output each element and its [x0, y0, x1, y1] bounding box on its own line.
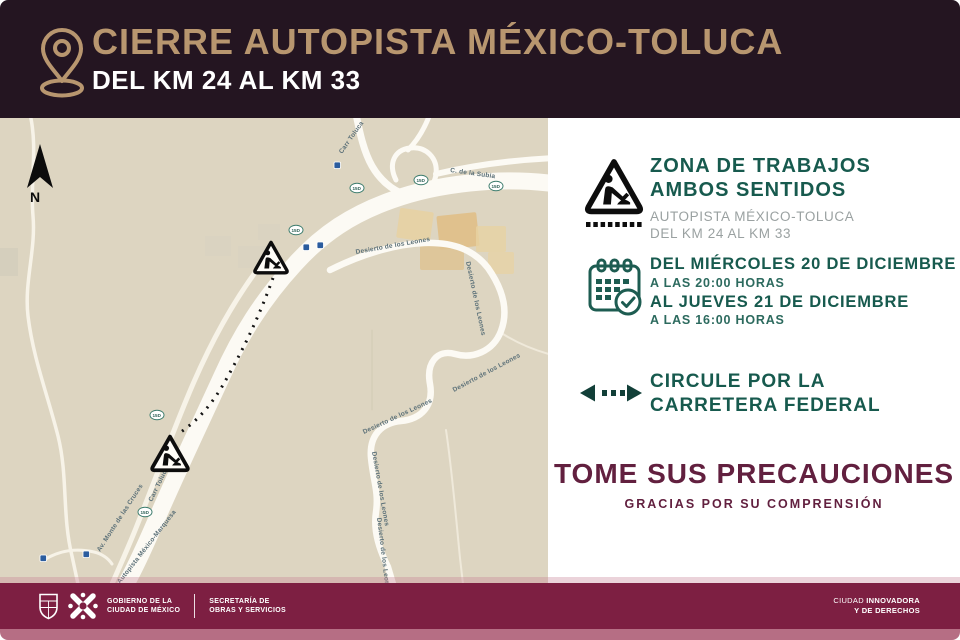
- detour-line1: CIRCULE POR LA: [650, 370, 881, 394]
- svg-text:15D: 15D: [153, 413, 162, 418]
- works-line2: AMBOS SENTIDOS: [650, 178, 871, 202]
- department-name: SECRETARÍA DE OBRAS Y SERVICIOS: [209, 597, 286, 616]
- calendar-check-icon: [586, 258, 644, 320]
- svg-text:15D: 15D: [141, 510, 150, 515]
- header: CIERRE AUTOPISTA MÉXICO-TOLUCA DEL KM 24…: [0, 0, 960, 118]
- schedule-end-date: AL JUEVES 21 DE DICIEMBRE: [650, 292, 956, 313]
- government-branding: GOBIERNO DE LA CIUDAD DE MÉXICO SECRETAR…: [38, 583, 286, 629]
- city-shield-logo-icon: [38, 593, 59, 620]
- svg-text:15D: 15D: [353, 186, 362, 191]
- cdmx-logo-icon: [67, 591, 99, 621]
- bottom-accent-strip: [0, 629, 960, 640]
- footer-divider: [194, 594, 195, 618]
- warning-section: TOME SUS PRECAUCIONES GRACIAS POR SU COM…: [548, 458, 960, 511]
- detour-line2: CARRETERA FEDERAL: [650, 394, 881, 418]
- government-name: GOBIERNO DE LA CIUDAD DE MÉXICO: [107, 597, 180, 616]
- road-map: N 15D 15D 15D 15D 15D 15D: [0, 118, 548, 583]
- svg-text:15D: 15D: [417, 178, 426, 183]
- info-panel: ZONA DE TRABAJOS AMBOS SENTIDOS AUTOPIST…: [548, 118, 960, 583]
- schedule-end-time: A LAS 16:00 HORAS: [650, 312, 956, 329]
- closure-announcement-poster: CIERRE AUTOPISTA MÉXICO-TOLUCA DEL KM 24…: [0, 0, 960, 640]
- footer: GOBIERNO DE LA CIUDAD DE MÉXICO SECRETAR…: [0, 583, 960, 629]
- dotted-row: [586, 222, 642, 227]
- footer-tagline: CIUDAD INNOVADORA Y DE DERECHOS: [833, 583, 920, 629]
- location-pin-icon: [36, 26, 88, 98]
- warning-subtitle: GRACIAS POR SU COMPRENSIÓN: [548, 497, 960, 511]
- roadworks-sign-icon: [582, 156, 646, 232]
- works-sub2: DEL KM 24 AL KM 33: [650, 225, 871, 242]
- page-title: CIERRE AUTOPISTA MÉXICO-TOLUCA: [92, 22, 783, 62]
- works-sub1: AUTOPISTA MÉXICO-TOLUCA: [650, 208, 871, 225]
- two-way-dotted-arrow-icon: [578, 382, 644, 404]
- north-label: N: [30, 189, 40, 205]
- schedule-start-date: DEL MIÉRCOLES 20 DE DICIEMBRE: [650, 254, 956, 275]
- warning-title: TOME SUS PRECAUCIONES: [548, 458, 960, 490]
- svg-text:15D: 15D: [292, 228, 301, 233]
- svg-text:15D: 15D: [492, 184, 501, 189]
- works-line1: ZONA DE TRABAJOS: [650, 154, 871, 178]
- page-subtitle: DEL KM 24 AL KM 33: [92, 65, 783, 96]
- schedule-start-time: A LAS 20:00 HORAS: [650, 275, 956, 292]
